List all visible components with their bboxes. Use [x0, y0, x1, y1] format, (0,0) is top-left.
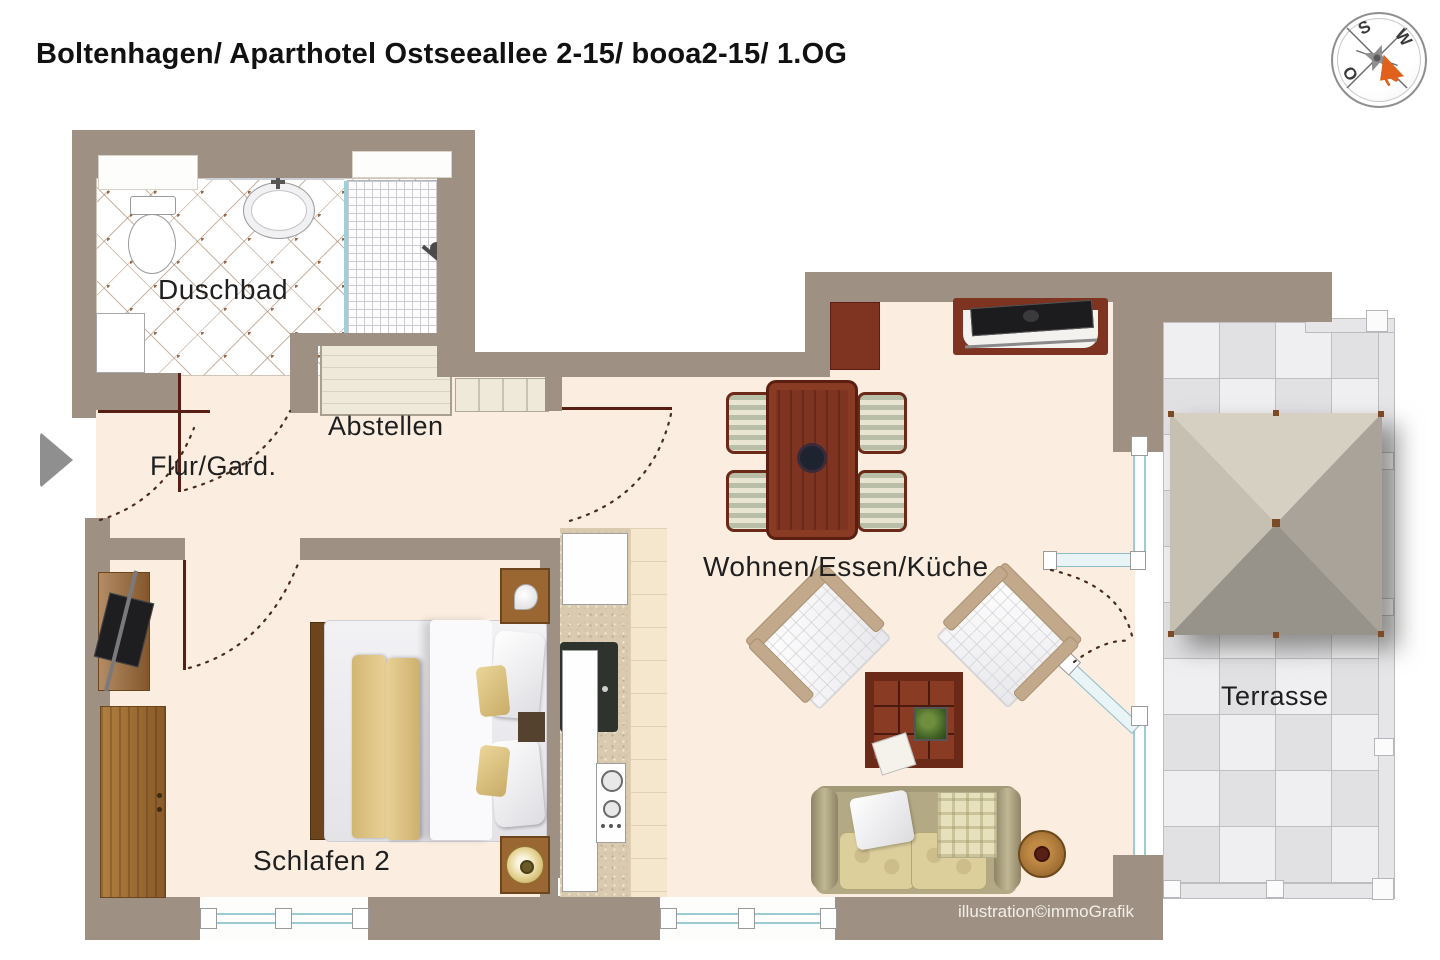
wardrobe — [100, 706, 166, 898]
toilet — [130, 196, 176, 215]
wall — [300, 538, 562, 560]
door-hinge — [1131, 436, 1148, 456]
plaid-throw — [937, 792, 997, 858]
accent-pillow — [475, 665, 510, 718]
railing-post — [1374, 738, 1394, 756]
door-leaf — [98, 410, 210, 413]
kitchen-cabinet — [562, 650, 598, 892]
duvet — [430, 620, 492, 840]
room-label-terrasse: Terrasse — [1221, 681, 1329, 712]
fridge — [562, 533, 628, 605]
storage-shelf-small — [455, 378, 549, 412]
room-label-flur: Flur/Gard. — [150, 451, 277, 482]
window-frame — [352, 908, 369, 929]
bath-cabinet — [96, 313, 145, 373]
headboard-gap — [518, 712, 545, 742]
pillow — [849, 789, 915, 850]
bathroom-window — [98, 155, 198, 190]
shower-door — [344, 181, 348, 344]
room-label-abstellen: Abstellen — [328, 411, 444, 442]
terrace-door-leaf — [1048, 553, 1135, 567]
compass-icon: S W O N — [1331, 12, 1427, 108]
entrance-arrow-icon — [40, 432, 73, 488]
dining-table — [766, 380, 858, 540]
dining-chair — [857, 392, 907, 454]
window-frame — [738, 908, 755, 929]
parasol — [1170, 413, 1382, 635]
round-stool — [1018, 830, 1066, 878]
accent-pillow — [475, 745, 510, 798]
tv-cabinet — [98, 572, 150, 691]
sofa-armrest — [994, 788, 1021, 890]
lamp-icon — [514, 584, 538, 610]
room-label-schlafen: Schlafen 2 — [253, 845, 390, 877]
railing-post — [1266, 880, 1284, 898]
railing-post — [1163, 880, 1181, 898]
door-hinge — [1043, 551, 1057, 570]
wall — [545, 377, 562, 411]
railing-post — [1372, 878, 1394, 900]
window-frame — [660, 908, 677, 929]
blanket — [352, 655, 386, 838]
kitchen-tile-strip — [630, 528, 667, 897]
nightstand — [500, 836, 550, 894]
wall — [316, 333, 437, 346]
room-label-duschbad: Duschbad — [158, 274, 288, 306]
bed — [310, 620, 545, 840]
wall — [290, 333, 318, 413]
room-label-wohnen: Wohnen/Essen/Küche — [703, 551, 989, 583]
storage-shelf — [320, 342, 452, 416]
wall — [85, 538, 185, 560]
page-title: Boltenhagen/ Aparthotel Ostseeallee 2-15… — [36, 38, 847, 71]
door-leaf — [183, 560, 186, 670]
window-frame — [820, 908, 837, 929]
watermark: illustration©immoGrafik — [958, 902, 1134, 922]
shower — [347, 180, 439, 347]
floor-plan: Duschbad Abstellen Flur/Gard. Schlafen 2… — [0, 0, 1440, 960]
window-frame — [200, 908, 217, 929]
terrace-window — [1133, 452, 1146, 560]
table-vase — [800, 446, 824, 470]
door-hinge — [1131, 706, 1148, 726]
sink — [243, 182, 315, 239]
toilet-bowl — [128, 214, 176, 274]
cabinet — [830, 302, 880, 370]
door-leaf — [562, 407, 672, 410]
lamp-icon — [506, 846, 544, 884]
terrace-window — [1133, 723, 1146, 855]
nightstand — [500, 568, 550, 624]
wall — [72, 373, 180, 410]
exterior-notch — [556, 293, 805, 352]
wall — [437, 352, 830, 377]
tv-sideboard — [953, 298, 1108, 355]
wall — [1113, 300, 1163, 452]
window-frame — [275, 908, 292, 929]
door-hinge — [1130, 551, 1146, 570]
blanket — [386, 658, 420, 840]
sofa-armrest — [811, 788, 838, 890]
sofa — [815, 786, 1017, 894]
railing-post — [1366, 310, 1388, 332]
plant-icon — [914, 707, 948, 741]
wall — [805, 295, 830, 377]
stove — [596, 763, 626, 843]
dining-chair — [857, 470, 907, 532]
coffee-table — [865, 672, 963, 768]
bathroom-window — [352, 151, 452, 178]
